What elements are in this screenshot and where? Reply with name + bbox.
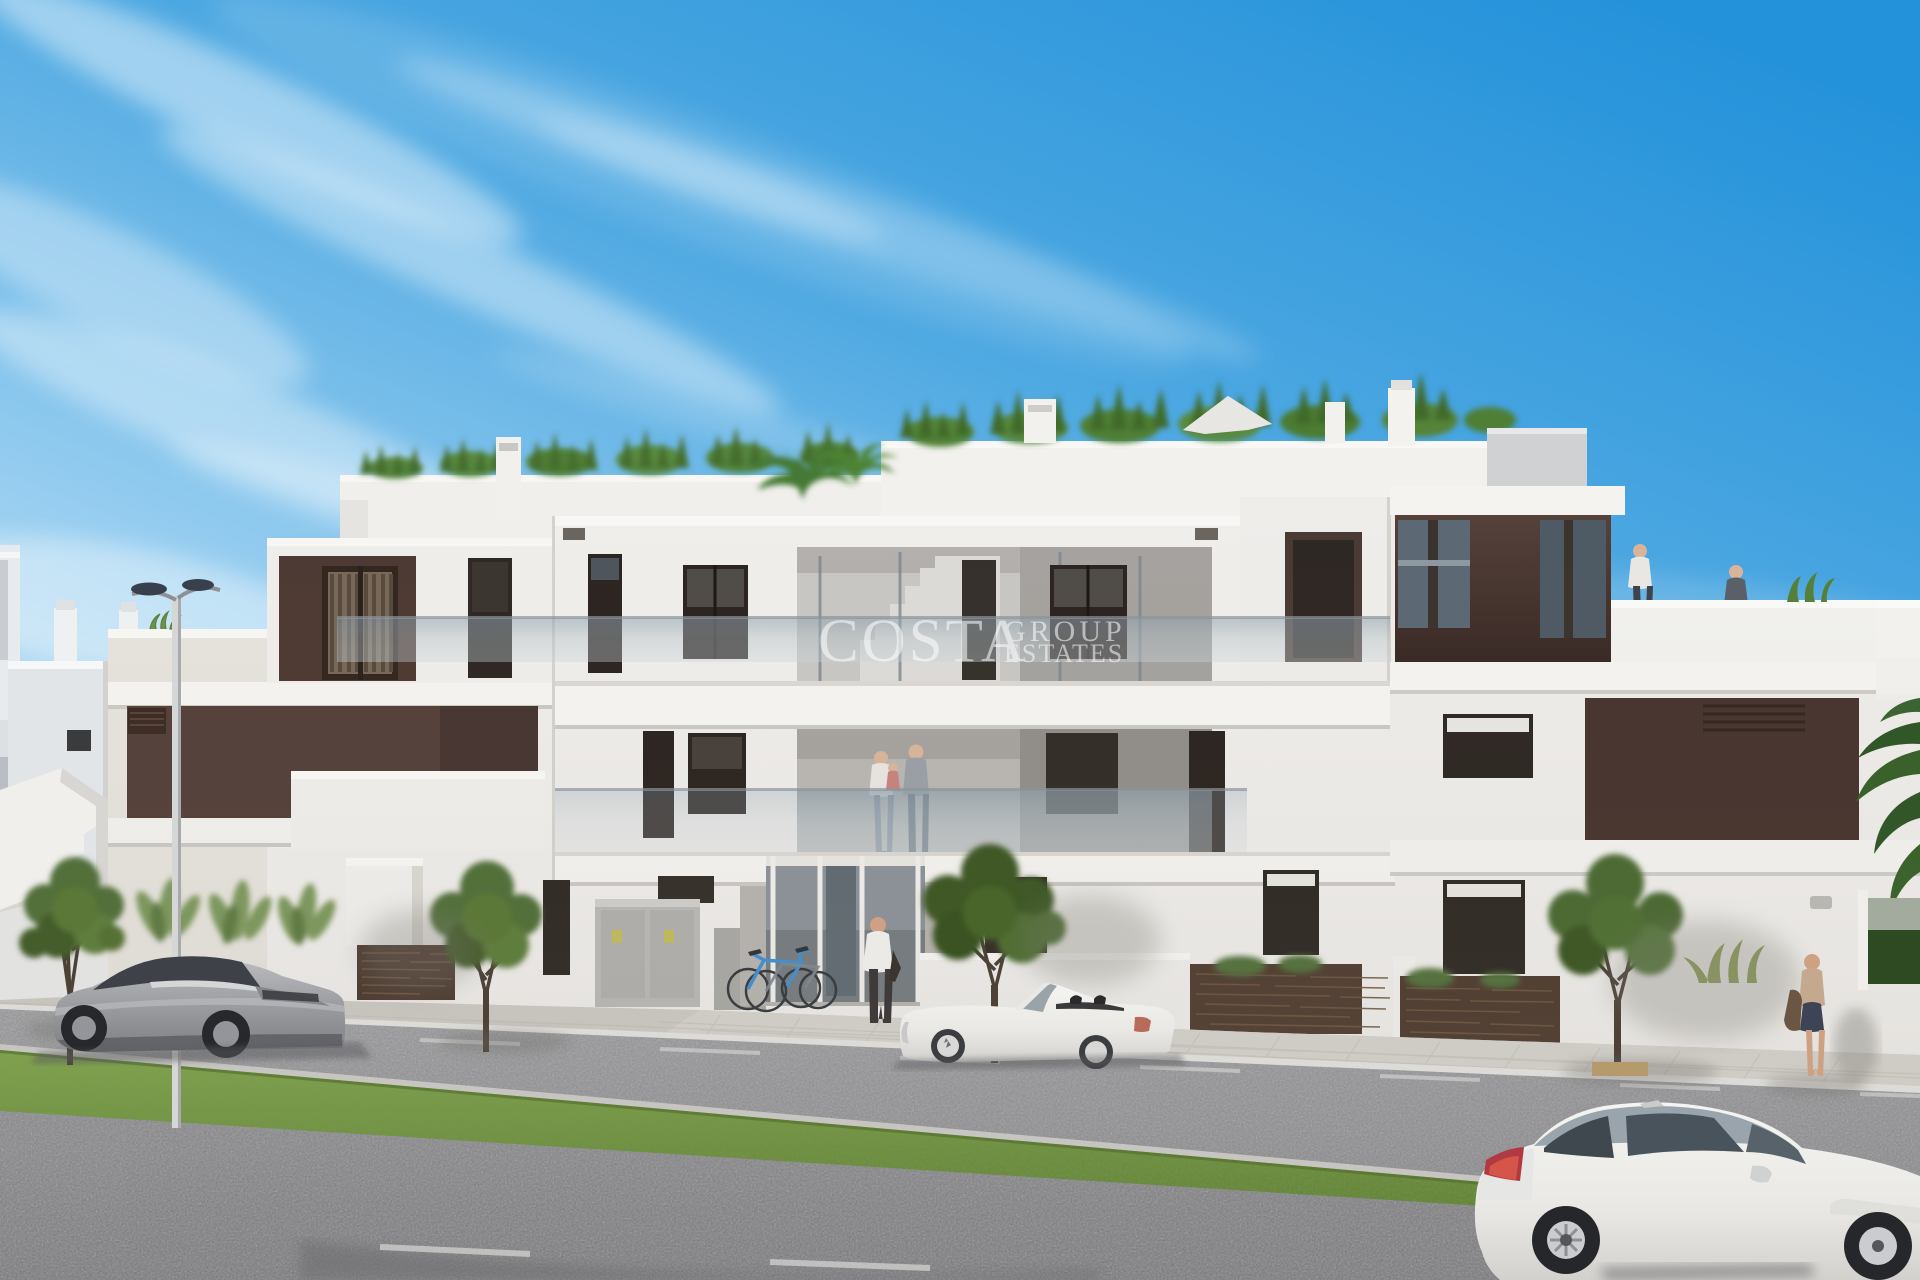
svg-text:ESTATES: ESTATES <box>1004 639 1124 668</box>
svg-text:COSTA: COSTA <box>818 608 1028 675</box>
